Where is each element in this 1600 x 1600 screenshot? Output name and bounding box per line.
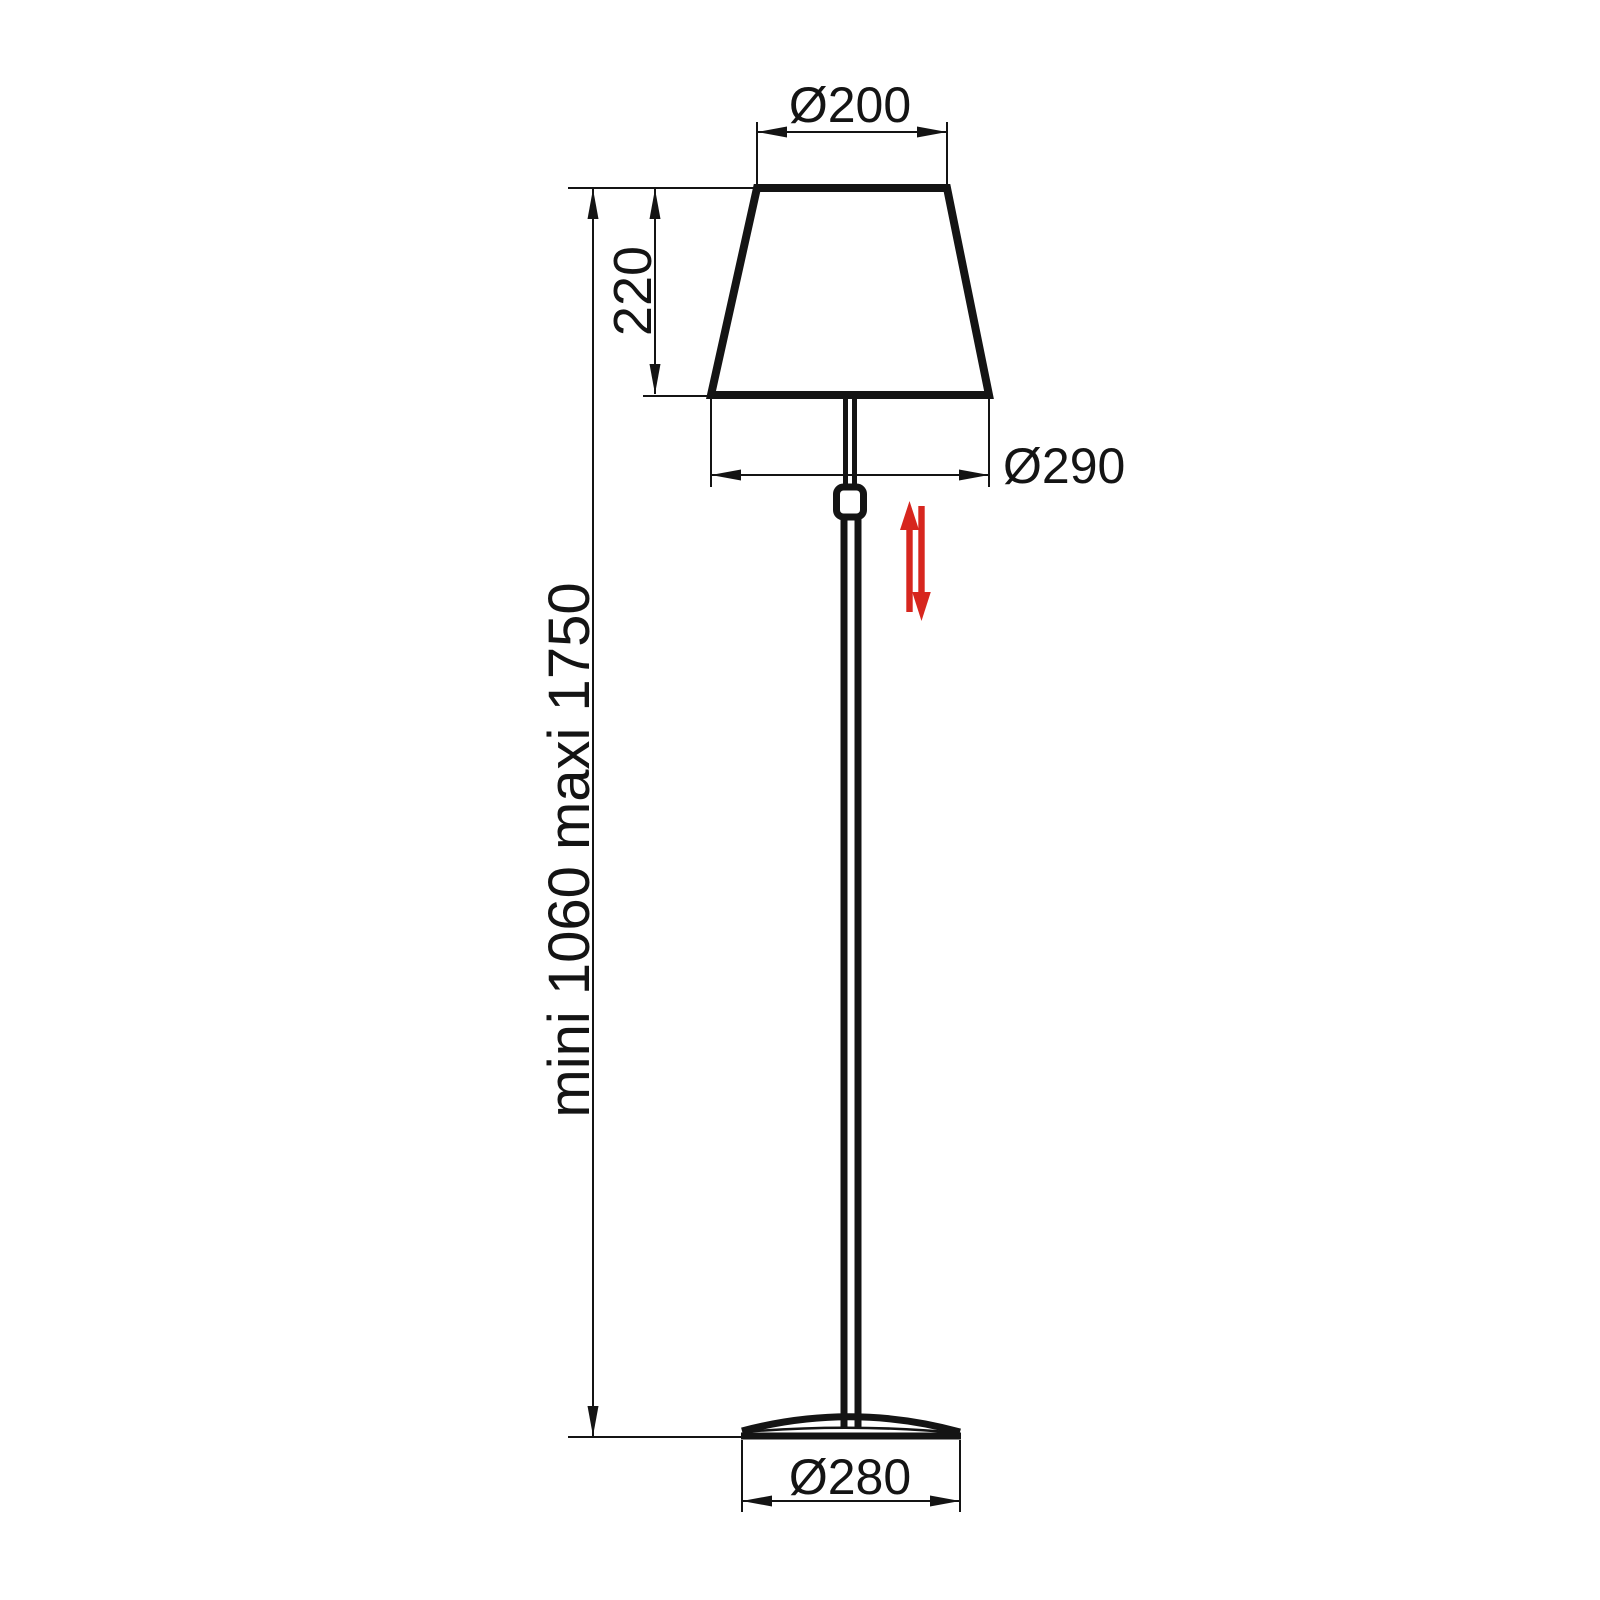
lamp-outline xyxy=(711,188,989,1436)
up-arrow-shaft xyxy=(906,528,912,612)
arrowhead-down xyxy=(588,1406,599,1436)
arrowhead-right xyxy=(917,127,947,138)
arrowhead-down xyxy=(650,364,661,394)
arrowhead-up xyxy=(650,189,661,219)
up-arrow-head xyxy=(900,501,919,530)
dim-label-shade-bottom-diameter: Ø290 xyxy=(1003,438,1125,494)
lamp-base-inner-line xyxy=(744,1428,958,1433)
arrowhead-right xyxy=(959,470,989,481)
lamp-shade-outline xyxy=(711,188,989,395)
dim-label-base-diameter: Ø280 xyxy=(789,1449,911,1505)
arrowhead-right xyxy=(930,1496,960,1507)
arrowhead-left xyxy=(742,1496,772,1507)
dim-label-shade-height: 220 xyxy=(603,246,663,336)
technical-drawing-canvas: Ø200 220 Ø290 mini 1060 maxi 1750 Ø280 xyxy=(0,0,1600,1600)
lamp-dimension-diagram: Ø200 220 Ø290 mini 1060 maxi 1750 Ø280 xyxy=(0,0,1600,1600)
height-adjust-arrows xyxy=(900,501,931,621)
arrowhead-left xyxy=(757,127,787,138)
down-arrow-head xyxy=(912,592,931,621)
dim-label-overall-height: mini 1060 maxi 1750 xyxy=(537,582,602,1117)
arrowhead-up xyxy=(588,189,599,219)
down-arrow-shaft xyxy=(918,506,924,594)
dim-label-shade-top-diameter: Ø200 xyxy=(789,77,911,133)
arrowhead-left xyxy=(711,470,741,481)
adjustment-knob xyxy=(837,487,864,517)
